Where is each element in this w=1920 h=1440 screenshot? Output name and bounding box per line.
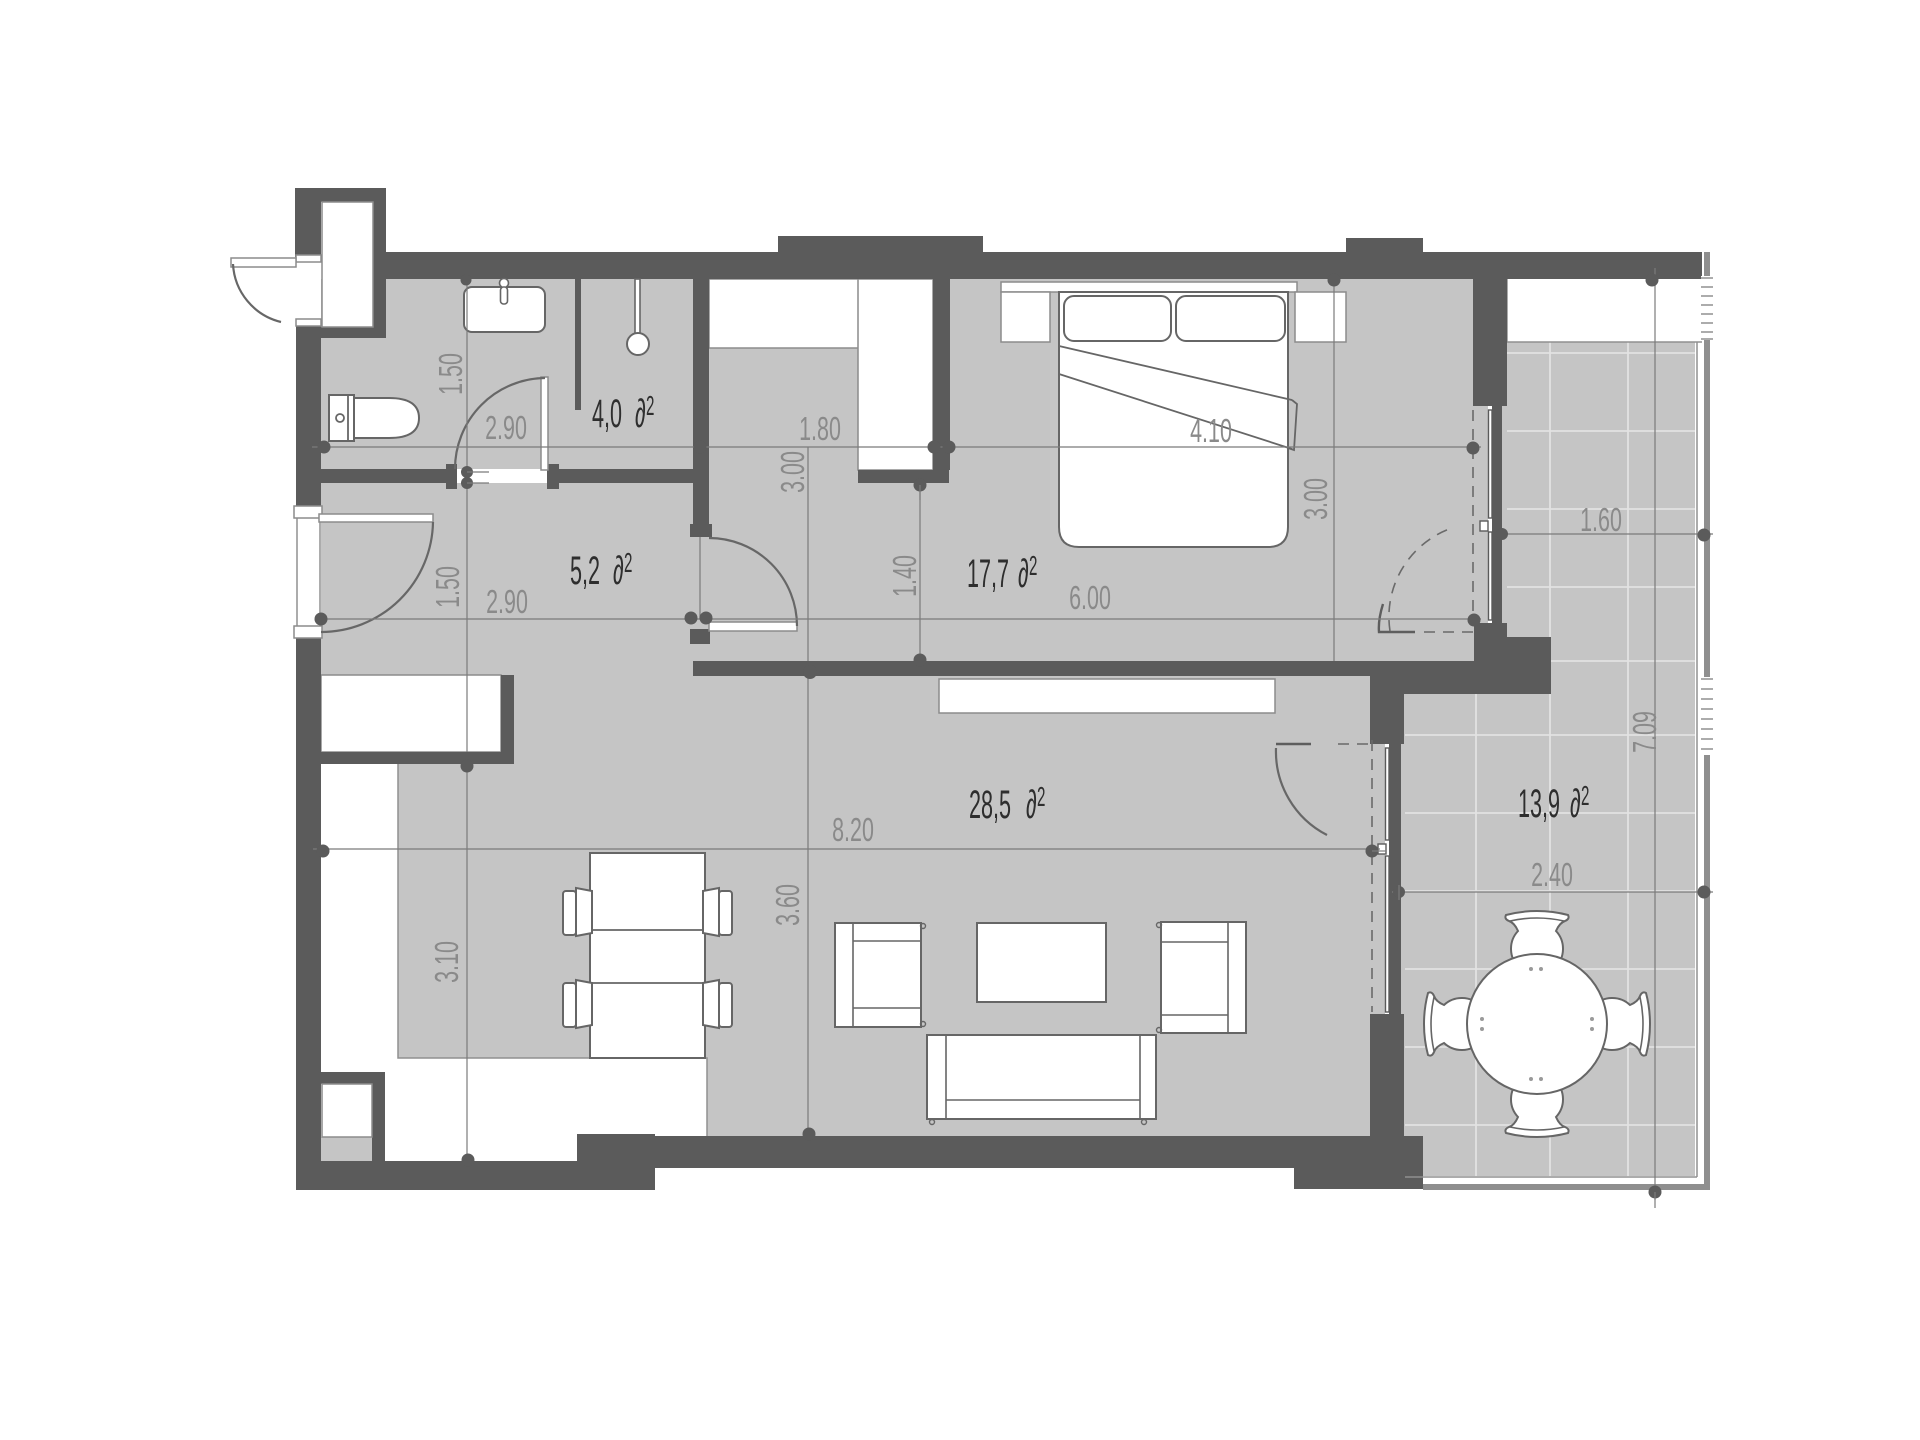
svg-text:2: 2 bbox=[1581, 780, 1589, 811]
svg-text:∂: ∂ bbox=[635, 391, 646, 436]
svg-text:2: 2 bbox=[1037, 781, 1045, 812]
svg-text:1.50: 1.50 bbox=[432, 353, 469, 395]
svg-text:2.90: 2.90 bbox=[486, 583, 528, 620]
svg-text:1.50: 1.50 bbox=[429, 566, 466, 608]
svg-text:1.80: 1.80 bbox=[799, 410, 841, 447]
svg-text:2: 2 bbox=[646, 390, 654, 421]
svg-text:2: 2 bbox=[1029, 550, 1037, 581]
svg-text:2: 2 bbox=[624, 547, 632, 578]
svg-text:∂: ∂ bbox=[613, 548, 624, 593]
svg-text:2.90: 2.90 bbox=[485, 409, 527, 446]
svg-text:∂: ∂ bbox=[1026, 782, 1037, 827]
svg-text:5,2: 5,2 bbox=[570, 548, 600, 593]
svg-text:6.00: 6.00 bbox=[1069, 579, 1111, 616]
svg-text:7.09: 7.09 bbox=[1626, 711, 1663, 753]
svg-text:1.60: 1.60 bbox=[1580, 501, 1622, 538]
svg-text:2.40: 2.40 bbox=[1531, 856, 1573, 893]
svg-text:4,0: 4,0 bbox=[592, 391, 622, 436]
svg-text:∂: ∂ bbox=[1570, 781, 1581, 826]
svg-text:4.10: 4.10 bbox=[1190, 412, 1232, 449]
svg-text:3.10: 3.10 bbox=[428, 941, 465, 983]
svg-text:3.00: 3.00 bbox=[774, 451, 811, 493]
svg-text:3.00: 3.00 bbox=[1297, 478, 1334, 520]
svg-text:28,5: 28,5 bbox=[969, 782, 1011, 827]
svg-text:3.60: 3.60 bbox=[769, 884, 806, 926]
svg-text:13,9: 13,9 bbox=[1518, 781, 1560, 826]
svg-text:8.20: 8.20 bbox=[832, 811, 874, 848]
svg-text:17,7: 17,7 bbox=[967, 551, 1009, 596]
svg-text:∂: ∂ bbox=[1018, 551, 1029, 596]
svg-text:1.40: 1.40 bbox=[886, 555, 923, 597]
